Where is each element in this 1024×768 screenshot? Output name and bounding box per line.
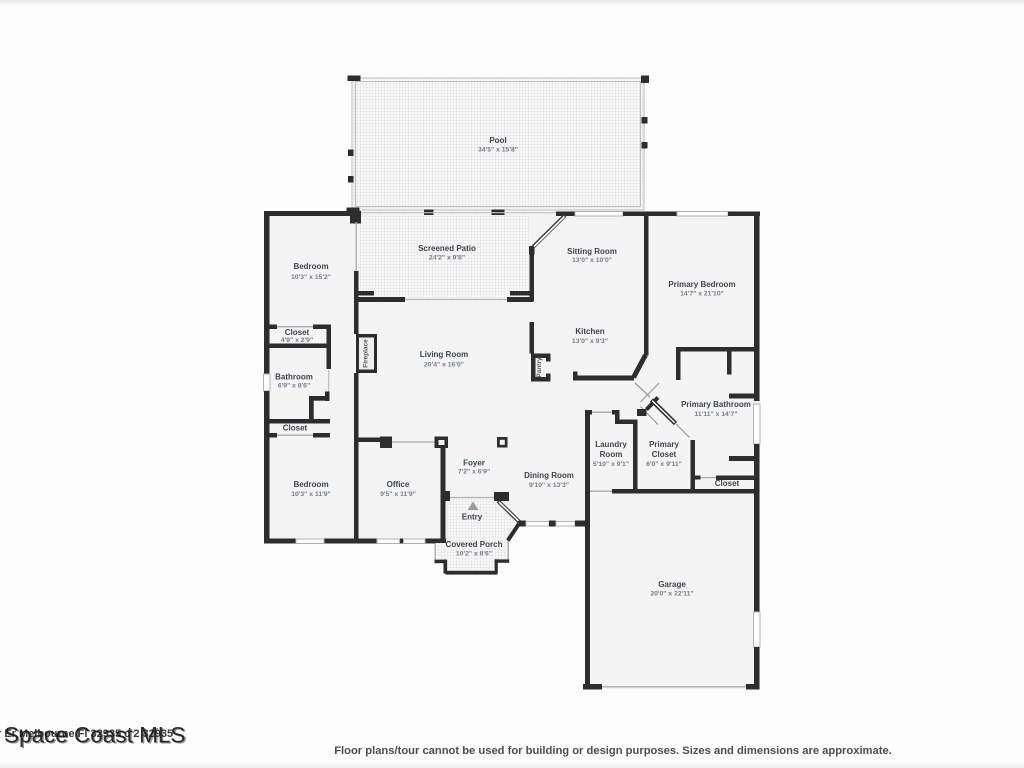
svg-text:Bedroom: Bedroom: [293, 262, 328, 271]
svg-text:Closet: Closet: [283, 424, 308, 433]
svg-text:Pantry: Pantry: [536, 357, 543, 378]
svg-text:11'11" x 14'7": 11'11" x 14'7": [695, 411, 738, 418]
svg-text:Floor plans/tour cannot be use: Floor plans/tour cannot be used for buil…: [334, 745, 892, 757]
svg-text:34'5" x 15'8": 34'5" x 15'8": [478, 147, 518, 154]
svg-text:Closet: Closet: [715, 479, 740, 488]
svg-text:24'2" x 9'8": 24'2" x 9'8": [429, 255, 465, 262]
svg-text:Dining Room: Dining Room: [524, 471, 574, 480]
svg-text:5'10" x 9'1": 5'10" x 9'1": [593, 461, 629, 468]
svg-text:9'10" x 13'3": 9'10" x 13'3": [529, 482, 569, 489]
svg-text:10'3" x 11'9": 10'3" x 11'9": [291, 491, 331, 498]
svg-text:Pool: Pool: [489, 136, 506, 145]
svg-text:10'3" x 15'2": 10'3" x 15'2": [291, 274, 331, 281]
svg-text:13'0" x 9'3": 13'0" x 9'3": [572, 338, 608, 345]
svg-text:Primary Bathroom: Primary Bathroom: [681, 400, 751, 409]
svg-text:20'4" x 16'0": 20'4" x 16'0": [424, 362, 464, 369]
svg-text:10'2" x 8'6": 10'2" x 8'6": [456, 551, 492, 558]
svg-text:Entry: Entry: [462, 513, 483, 522]
svg-text:Fireplace: Fireplace: [363, 339, 370, 368]
svg-text:Space Coast MLS: Space Coast MLS: [4, 723, 185, 748]
svg-text:6'0" x 9'11": 6'0" x 9'11": [646, 461, 682, 468]
svg-text:Room: Room: [600, 450, 623, 459]
svg-text:Primary: Primary: [649, 440, 679, 449]
svg-text:Garage: Garage: [658, 580, 686, 589]
svg-text:20'0" x 22'11": 20'0" x 22'11": [650, 591, 693, 598]
svg-text:Laundry: Laundry: [595, 440, 627, 449]
svg-text:Bathroom: Bathroom: [275, 373, 313, 382]
svg-text:Foyer: Foyer: [463, 459, 485, 468]
svg-text:Screened Patio: Screened Patio: [418, 244, 476, 253]
svg-text:Closet: Closet: [652, 450, 677, 459]
svg-text:Living Room: Living Room: [420, 350, 468, 359]
svg-text:14'7" x 21'10": 14'7" x 21'10": [680, 291, 724, 298]
svg-text:Sitting Room: Sitting Room: [567, 247, 617, 256]
svg-text:Office: Office: [387, 480, 410, 489]
svg-text:7'2" x 6'9": 7'2" x 6'9": [458, 469, 490, 476]
svg-text:Primary Bedroom: Primary Bedroom: [668, 280, 735, 289]
svg-text:9'5" x 11'9": 9'5" x 11'9": [380, 491, 416, 498]
svg-text:Closet: Closet: [285, 328, 310, 337]
svg-text:Covered Porch: Covered Porch: [446, 540, 503, 549]
svg-text:13'0" x 10'0": 13'0" x 10'0": [572, 257, 612, 264]
svg-text:Kitchen: Kitchen: [575, 327, 604, 336]
svg-text:Bedroom: Bedroom: [293, 480, 328, 489]
svg-text:4'9" x 2'9": 4'9" x 2'9": [281, 337, 313, 344]
svg-text:6'9" x 8'6": 6'9" x 8'6": [278, 383, 310, 390]
